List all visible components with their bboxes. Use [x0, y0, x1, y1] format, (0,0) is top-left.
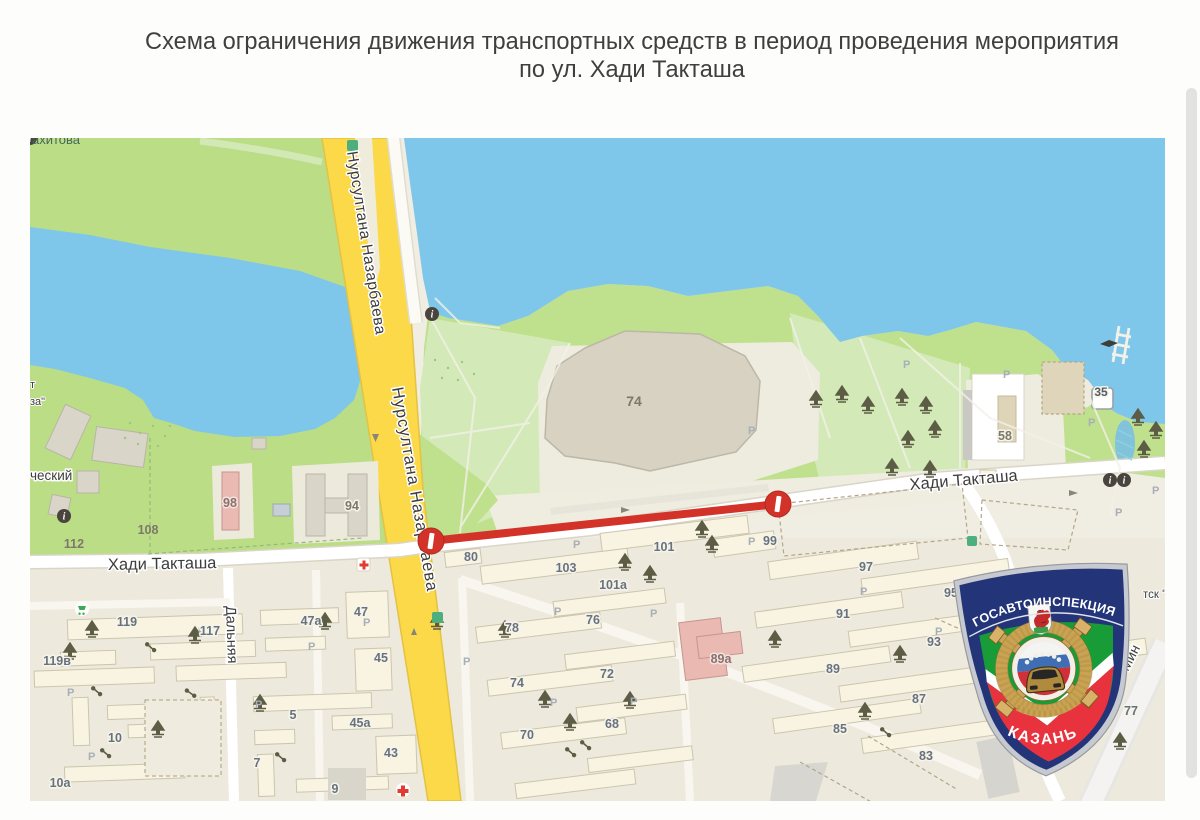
svg-text:P: P [860, 586, 867, 598]
svg-text:P: P [463, 656, 470, 668]
svg-text:101а: 101а [599, 578, 628, 592]
svg-text:97: 97 [859, 560, 873, 574]
svg-text:119: 119 [117, 615, 137, 629]
svg-text:47: 47 [354, 605, 368, 619]
svg-text:7: 7 [254, 756, 261, 770]
svg-text:ческий: ческий [30, 468, 72, 483]
svg-text:P: P [650, 608, 657, 620]
svg-text:83: 83 [919, 749, 933, 763]
svg-text:P: P [1003, 369, 1010, 381]
svg-text:P: P [550, 697, 557, 709]
svg-text:108: 108 [138, 523, 159, 537]
svg-text:43: 43 [384, 746, 398, 760]
svg-text:78: 78 [505, 621, 519, 635]
svg-text:76: 76 [586, 613, 600, 627]
svg-text:P: P [748, 425, 755, 437]
svg-text:45: 45 [374, 651, 388, 665]
svg-text:85: 85 [833, 722, 847, 736]
svg-text:74: 74 [626, 393, 642, 409]
svg-text:117: 117 [200, 624, 220, 638]
svg-text:94: 94 [345, 499, 359, 513]
svg-text:103: 103 [556, 561, 577, 575]
svg-text:91: 91 [836, 607, 850, 621]
svg-text:9: 9 [332, 782, 339, 796]
svg-text:P: P [67, 687, 74, 699]
svg-text:P: P [1088, 417, 1095, 429]
svg-text:72: 72 [600, 667, 614, 681]
svg-text:P: P [573, 539, 580, 551]
svg-text:P: P [903, 359, 910, 371]
svg-text:89: 89 [826, 662, 840, 676]
svg-text:т: т [30, 379, 35, 391]
svg-text:P: P [554, 606, 561, 618]
svg-text:10: 10 [108, 731, 122, 745]
svg-text:ахитова: ахитова [32, 138, 81, 147]
svg-text:80: 80 [464, 550, 478, 564]
svg-text:68: 68 [605, 717, 619, 731]
svg-text:74: 74 [510, 676, 524, 690]
svg-text:P: P [748, 536, 755, 548]
svg-text:P: P [630, 696, 637, 708]
svg-text:99: 99 [763, 534, 777, 548]
svg-text:P: P [255, 699, 262, 711]
svg-text:45а: 45а [350, 716, 372, 730]
svg-text:P: P [1152, 485, 1159, 497]
svg-text:35: 35 [1094, 385, 1108, 399]
svg-text:70: 70 [520, 728, 534, 742]
svg-text:89а: 89а [711, 652, 733, 666]
svg-text:47а: 47а [301, 614, 323, 628]
svg-text:Хади Такташа: Хади Такташа [108, 554, 218, 574]
svg-text:58: 58 [998, 429, 1012, 443]
svg-text:Дальняя: Дальняя [222, 606, 240, 664]
svg-text:P: P [1115, 507, 1122, 519]
svg-text:87: 87 [912, 692, 926, 706]
svg-text:за": за" [30, 396, 45, 408]
svg-text:112: 112 [64, 537, 84, 551]
svg-text:10а: 10а [50, 776, 72, 790]
svg-text:119в: 119в [43, 654, 71, 668]
svg-text:101: 101 [654, 540, 675, 554]
svg-text:98: 98 [223, 496, 237, 510]
svg-text:P: P [308, 641, 315, 653]
svg-text:P: P [88, 751, 95, 763]
svg-text:5: 5 [290, 708, 297, 722]
